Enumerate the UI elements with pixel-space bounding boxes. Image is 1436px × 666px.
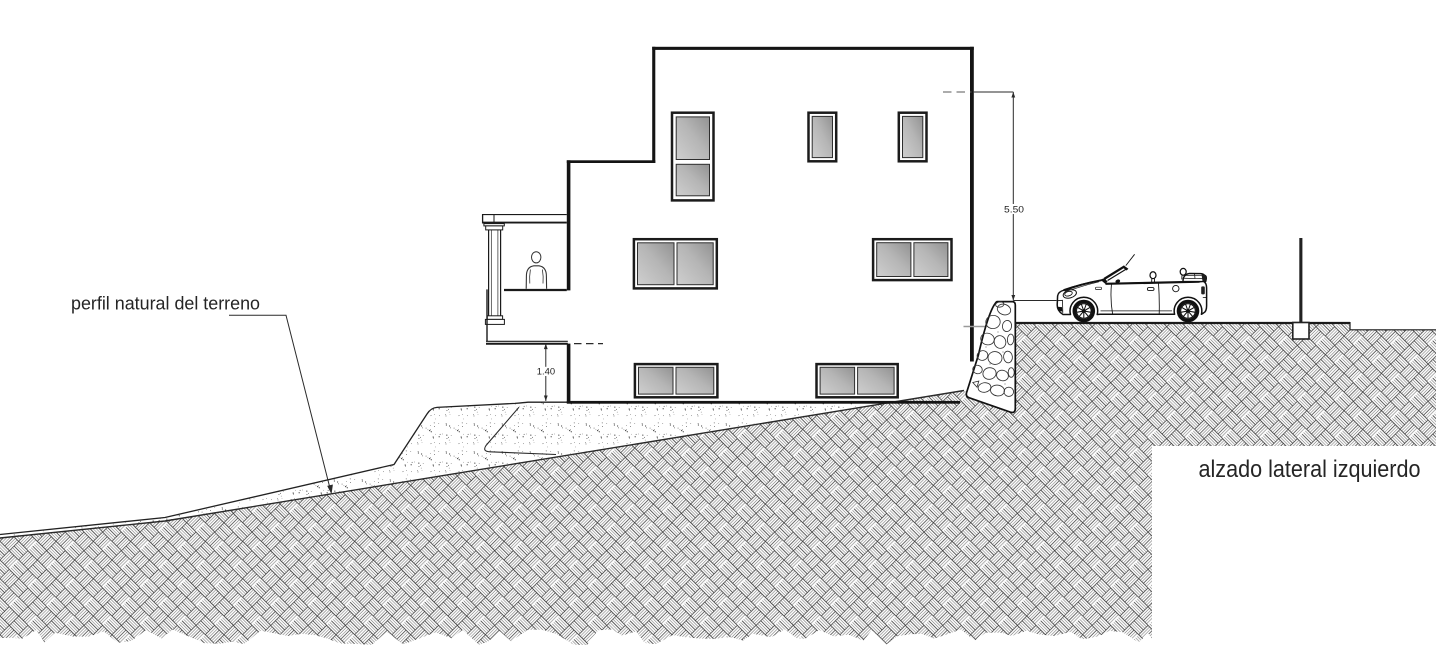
svg-text:alzado lateral izquierdo: alzado lateral izquierdo: [1199, 456, 1421, 483]
svg-text:5.50: 5.50: [1004, 205, 1024, 216]
svg-text:perfil natural del terreno: perfil natural del terreno: [71, 294, 260, 314]
svg-text:1.40: 1.40: [537, 367, 555, 377]
